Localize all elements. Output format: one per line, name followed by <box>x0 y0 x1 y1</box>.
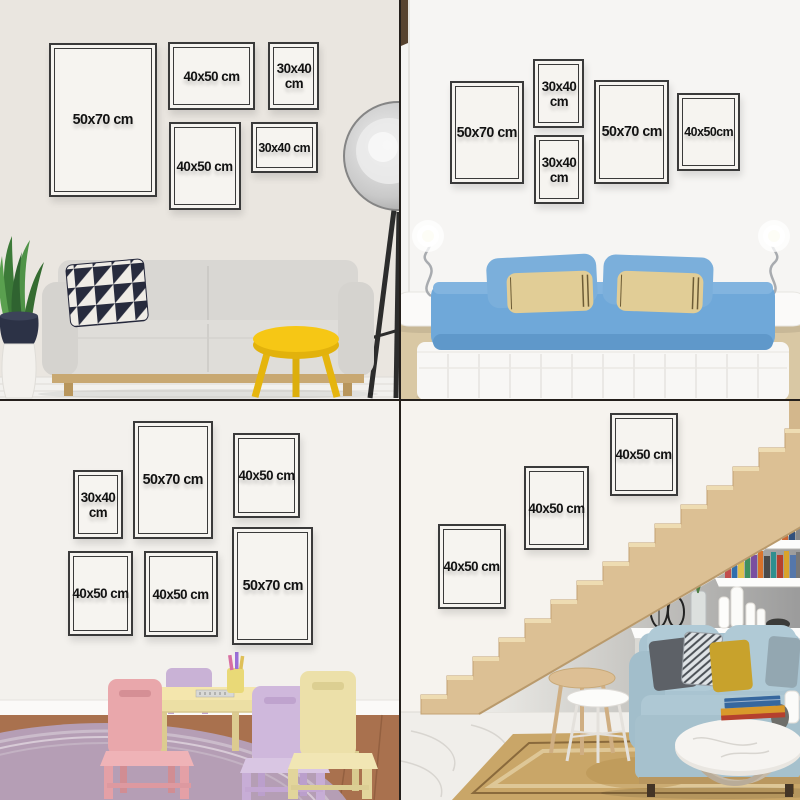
scene-kids-room: 30x40 cm 50x70 cm 40x50 cm 40x50 cm 40x5… <box>0 401 399 800</box>
scene-bedroom: 50x70 cm 30x40 cm 30x40 cm 50x70 cm 40x5… <box>401 0 800 399</box>
scene-living-room: 50x70 cm 40x50 cm 30x40 cm 40x50 cm 30x4… <box>0 0 399 399</box>
frame-size-label: 30x40 cm <box>537 155 581 184</box>
size-frame-30x40: 30x40 cm <box>73 470 123 539</box>
frame-size-label: 50x70 cm <box>143 472 203 488</box>
frame-size-label: 40x50 cm <box>616 447 672 462</box>
frame-size-label: 30x40 cm <box>259 141 311 155</box>
frame-size-label: 40x50 cm <box>72 586 128 601</box>
scene-staircase: 40x50 cm 40x50 cm 40x50 cm <box>401 401 800 800</box>
frame-size-label: 40x50 cm <box>153 587 209 602</box>
size-frame-50x70: 50x70 cm <box>133 421 213 539</box>
size-frame-40x50: 40x50 cm <box>610 413 678 496</box>
frame-size-label: 30x40 cm <box>537 79 581 108</box>
size-frame-40x50: 40x50 cm <box>168 42 255 110</box>
frame-size-label: 40x50 cm <box>528 501 584 516</box>
size-frame-40x50: 40x50 cm <box>438 524 506 609</box>
size-frame-30x40: 30x40 cm <box>534 135 584 204</box>
frame-size-label: 50x70 cm <box>73 112 133 128</box>
size-frame-40x50: 40x50 cm <box>144 551 218 637</box>
size-frame-40x50: 40x50 cm <box>169 122 241 210</box>
bed <box>416 282 789 399</box>
size-frame-30x40: 30x40 cm <box>533 59 584 128</box>
frame-size-label: 40x50 cm <box>238 468 294 483</box>
bedroom-illustration <box>401 0 800 399</box>
frame-size-label: 50x70 cm <box>601 124 661 140</box>
frame-size-label: 50x70 cm <box>242 578 302 594</box>
size-frame-40x50: 40x50 cm <box>524 466 589 550</box>
frame-size-label: 30x40 cm <box>76 490 120 519</box>
size-frame-30x40: 30x40 cm <box>251 122 318 173</box>
size-frame-40x50: 40x50cm <box>677 93 740 171</box>
frame-size-label: 40x50 cm <box>444 559 500 574</box>
frame-size-label: 50x70 cm <box>457 125 517 141</box>
frame-size-collage: 50x70 cm 40x50 cm 30x40 cm 40x50 cm 30x4… <box>0 0 800 800</box>
frame-size-label: 40x50cm <box>684 125 733 139</box>
size-frame-50x70: 50x70 cm <box>594 80 669 184</box>
size-frame-50x70: 50x70 cm <box>450 81 524 184</box>
frame-size-label: 40x50 cm <box>177 159 233 174</box>
frame-size-label: 40x50 cm <box>183 69 239 84</box>
size-frame-40x50: 40x50 cm <box>233 433 300 518</box>
triangle-pattern-pillow <box>66 259 149 328</box>
frame-size-label: 30x40 cm <box>272 61 316 90</box>
size-frame-30x40: 30x40 cm <box>268 42 319 110</box>
size-frame-50x70: 50x70 cm <box>49 43 157 197</box>
size-frame-40x50: 40x50 cm <box>68 551 133 636</box>
size-frame-50x70: 50x70 cm <box>232 527 313 645</box>
